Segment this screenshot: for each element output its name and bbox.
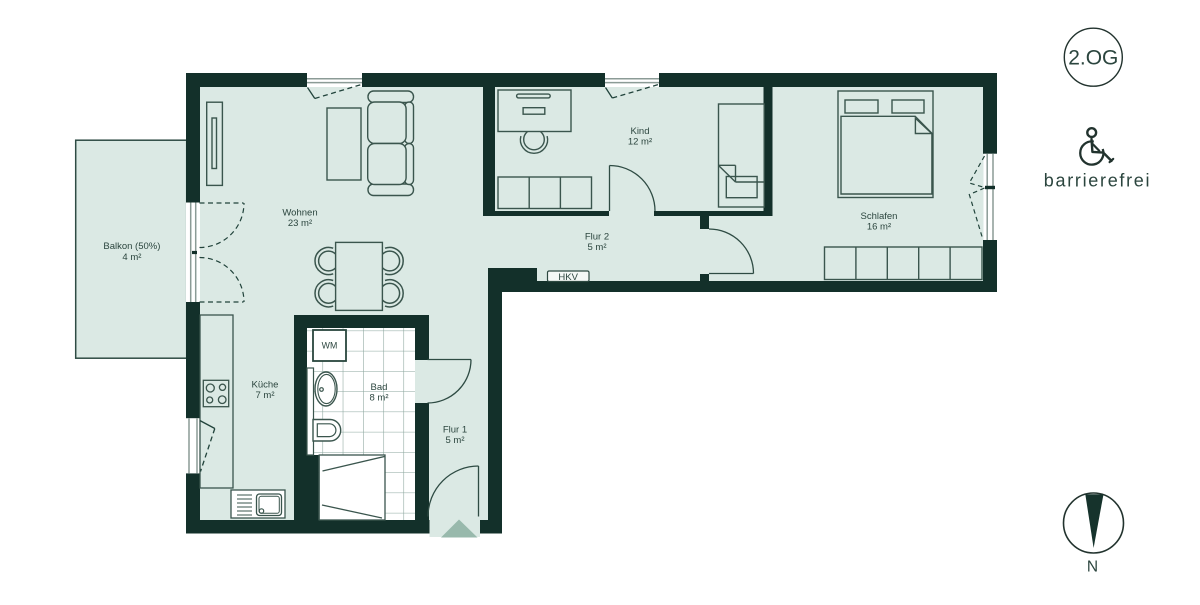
svg-text:Kind: Kind — [630, 126, 649, 137]
svg-text:N: N — [1087, 559, 1098, 576]
svg-text:Flur 1: Flur 1 — [443, 424, 467, 435]
svg-text:7 m²: 7 m² — [256, 390, 275, 401]
svg-text:HKV: HKV — [558, 272, 578, 283]
svg-text:8 m²: 8 m² — [370, 393, 389, 404]
svg-text:WM: WM — [322, 341, 338, 351]
svg-text:Bad: Bad — [371, 382, 388, 393]
svg-text:Flur 2: Flur 2 — [585, 231, 609, 242]
svg-text:5 m²: 5 m² — [588, 242, 607, 253]
svg-text:barrierefrei: barrierefrei — [1044, 171, 1151, 191]
svg-text:Schlafen: Schlafen — [861, 211, 898, 222]
svg-text:4 m²: 4 m² — [122, 252, 141, 263]
svg-text:23 m²: 23 m² — [288, 218, 312, 229]
svg-text:Wohnen: Wohnen — [282, 207, 317, 218]
svg-text:2.OG: 2.OG — [1068, 46, 1118, 69]
svg-text:12 m²: 12 m² — [628, 137, 652, 148]
svg-text:Küche: Küche — [252, 379, 279, 390]
svg-text:Balkon (50%): Balkon (50%) — [103, 241, 160, 252]
svg-text:16 m²: 16 m² — [867, 222, 891, 233]
svg-text:5 m²: 5 m² — [446, 435, 465, 446]
